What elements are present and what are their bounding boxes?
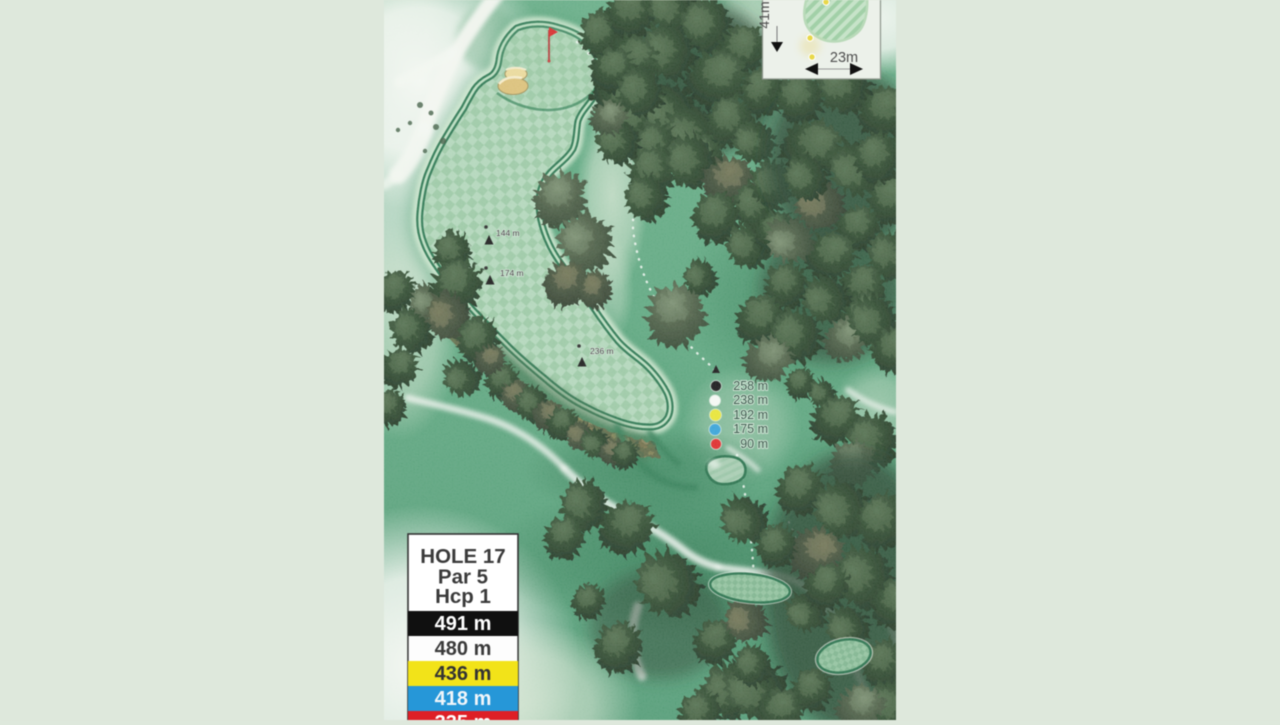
svg-text:436 m: 436 m (435, 663, 492, 685)
svg-text:480 m: 480 m (435, 638, 492, 660)
svg-text:491 m: 491 m (435, 613, 492, 635)
svg-text:23m: 23m (830, 50, 858, 66)
svg-text:Hcp 1: Hcp 1 (435, 585, 491, 608)
svg-text:418 m: 418 m (435, 688, 492, 710)
svg-text:41m: 41m (756, 1, 772, 28)
svg-text:335 m: 335 m (435, 712, 492, 720)
